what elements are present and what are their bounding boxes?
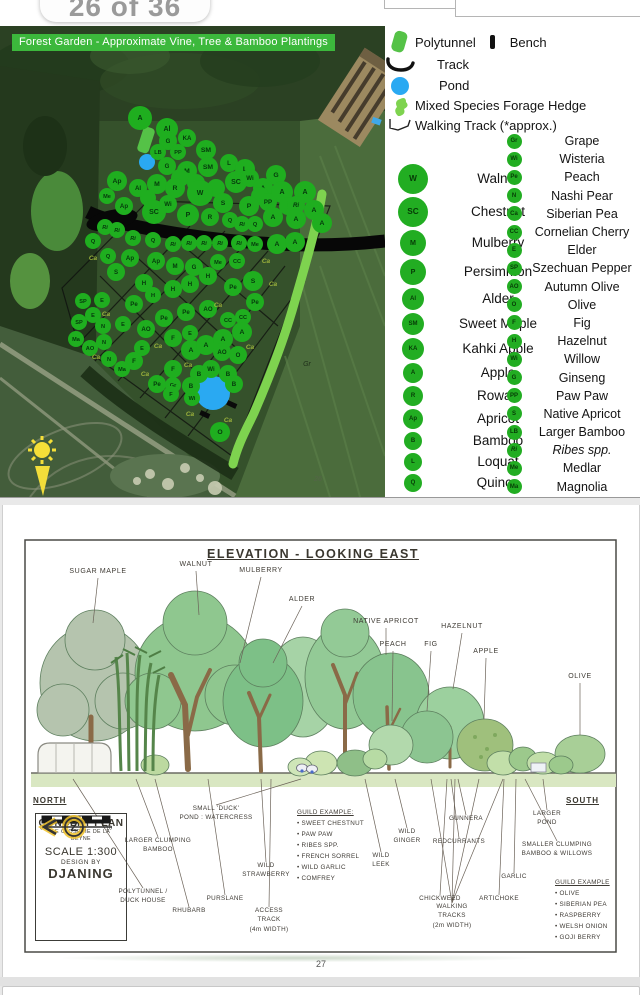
tree-marker: Ap	[147, 252, 165, 270]
guild-title: GUILD EXAMPLE	[555, 877, 610, 888]
svg-text:Q: Q	[151, 238, 156, 244]
guild-item: • WELSH ONION	[555, 921, 610, 932]
svg-text:E: E	[91, 313, 95, 319]
tree-marker: SM	[196, 140, 216, 160]
legend-species-small: GrGrapeWiWisteriaPePeachNNashi PearCaSib…	[503, 132, 639, 496]
polytunnel-drawing	[38, 743, 111, 773]
svg-text:N: N	[107, 357, 111, 363]
svg-text:Ri: Ri	[293, 202, 299, 209]
svg-text:SC: SC	[149, 209, 159, 216]
species-symbol: SC	[398, 197, 428, 227]
species-row: CaSiberian Pea	[503, 205, 639, 223]
svg-text:Ca: Ca	[102, 311, 111, 318]
tree-marker: SM	[198, 157, 218, 177]
svg-text:Pe: Pe	[153, 381, 161, 388]
tree-marker: Pe	[246, 293, 264, 311]
svg-text:Ap: Ap	[112, 178, 121, 185]
svg-text:E: E	[100, 298, 104, 304]
species-name: Cornelian Cherry	[525, 225, 639, 239]
guild-item: • SIBERIAN PEA	[555, 899, 610, 910]
svg-text:G: G	[166, 138, 171, 145]
svg-text:R: R	[173, 185, 178, 192]
svg-text:CC: CC	[233, 259, 241, 265]
tree-marker: Ri	[196, 235, 212, 251]
elevation-annotation: REDCURRANTS	[433, 837, 485, 846]
tree-marker: Ma	[68, 331, 84, 347]
species-name: Fig	[525, 316, 639, 330]
svg-text:F: F	[169, 392, 173, 398]
tree-marker: Wi	[159, 195, 177, 213]
tree-marker: B	[225, 375, 243, 393]
elevation-tree-label: ALDER	[289, 596, 315, 603]
elevation-tree-label: WALNUT	[180, 561, 213, 568]
svg-text:Ca: Ca	[269, 281, 278, 288]
tree-marker: M	[147, 174, 167, 194]
svg-text:Pe: Pe	[130, 301, 138, 308]
tree-marker: Ri	[212, 235, 228, 251]
tree-marker: Q	[100, 248, 116, 264]
guild-example-1: GUILD EXAMPLE:• SWEET CHESTNUT• PAW PAW•…	[297, 807, 364, 884]
elevation-annotation: LARGER CLUMPINGBAMBOO	[125, 836, 191, 855]
elevation-annotation: RHUBARB	[172, 906, 205, 915]
elevation-tree-label: MULBERRY	[239, 567, 283, 574]
tree-marker: F	[164, 360, 182, 378]
walking-track-icon	[385, 117, 415, 133]
tree-marker: PP	[170, 144, 186, 160]
species-symbol: SM	[402, 313, 424, 335]
svg-text:KA: KA	[183, 135, 192, 142]
svg-text:A: A	[302, 189, 307, 196]
tree-marker: P	[177, 204, 199, 226]
elevation-annotation: ACCESSTRACK(4m WIDTH)	[250, 906, 289, 934]
tree-marker: A	[312, 213, 332, 233]
svg-text:Ca: Ca	[214, 302, 223, 309]
svg-text:E: E	[121, 322, 125, 328]
svg-text:Al: Al	[135, 185, 141, 192]
tree-marker: CC	[220, 312, 236, 328]
species-symbol: Pe	[507, 170, 522, 185]
tree-marker: E	[94, 292, 110, 308]
svg-text:Ma: Ma	[118, 367, 127, 373]
species-row: AOAutumn Olive	[503, 278, 639, 296]
tree-marker: Ca	[214, 302, 223, 309]
page-indicator-text: 26 of 36	[69, 0, 181, 22]
svg-text:A: A	[204, 342, 209, 349]
tree-marker: A	[286, 209, 306, 229]
species-row: CCCornelian Cherry	[503, 223, 639, 241]
species-symbol: W	[398, 164, 428, 194]
svg-text:AO: AO	[203, 306, 212, 313]
reader-screen: 26 of 36	[0, 0, 640, 995]
south-label: SOUTH	[566, 796, 599, 805]
elevation-annotation: PURSLANE	[207, 894, 244, 903]
svg-text:SC: SC	[231, 179, 241, 186]
elevation-annotation: WILDSTRAWBERRY	[242, 861, 290, 880]
tree-marker: Q	[247, 216, 263, 232]
svg-text:Ca: Ca	[262, 258, 271, 265]
svg-text:A: A	[294, 216, 299, 223]
tree-marker: Al	[129, 179, 147, 197]
species-name: Grape	[525, 134, 639, 148]
tree-marker: F	[163, 386, 179, 402]
page-number: 27	[3, 959, 639, 969]
designer-name: DJANING	[36, 866, 126, 881]
species-name: Paw Paw	[525, 389, 639, 403]
elevation-annotation: SMALL 'DUCK'POND : WATERCRESS	[179, 804, 252, 823]
species-name: Elder	[525, 243, 639, 257]
svg-text:G: G	[192, 264, 197, 271]
tree-marker: H	[199, 267, 217, 285]
tree-marker: Wi	[202, 360, 220, 378]
svg-text:Ri: Ri	[170, 242, 176, 248]
tree-marker: Wi	[184, 390, 200, 406]
elevation-tree-label: HAZELNUT	[441, 623, 483, 630]
tree-marker: Q	[145, 232, 161, 248]
tree-marker: Pe	[155, 309, 173, 327]
guild-item: • WILD GARLIC	[297, 862, 364, 873]
species-row: PePeach	[503, 168, 639, 186]
tree-marker: Pe	[177, 303, 195, 321]
tree-marker: Ca	[89, 255, 98, 262]
species-row: OOlive	[503, 296, 639, 314]
tree-marker: O	[229, 346, 247, 364]
svg-text:P: P	[247, 203, 252, 210]
species-name: Peach	[525, 170, 639, 184]
tree-marker: Ca	[246, 344, 255, 351]
elevation-title: ELEVATION - LOOKING EAST	[173, 547, 453, 561]
legend-label: Track	[437, 57, 469, 72]
legend-label: Walking Track (*approx.)	[415, 118, 557, 133]
species-symbol: LB	[507, 425, 522, 440]
tree-marker: A	[232, 322, 252, 342]
svg-text:Ca: Ca	[154, 343, 163, 350]
bench-icon	[476, 34, 510, 50]
map-page[interactable]: AAlGKALBPPSMGMSMLLSCWiGAAAApAlMRWMeApSCW…	[0, 26, 640, 498]
species-symbol: KA	[402, 338, 424, 360]
field-label: 26	[313, 476, 322, 483]
svg-text:Ri: Ri	[236, 241, 242, 247]
species-name: Willow	[525, 352, 639, 366]
tree-marker: SP	[75, 293, 91, 309]
legend-row-pond: Pond	[385, 75, 640, 96]
svg-text:A: A	[271, 214, 276, 221]
svg-text:A: A	[189, 347, 194, 354]
svg-text:P: P	[186, 212, 191, 219]
svg-text:LB: LB	[154, 150, 161, 156]
species-symbol: M	[400, 230, 426, 256]
svg-text:S: S	[251, 278, 256, 285]
tree-marker: Ca	[186, 411, 195, 418]
svg-text:G: G	[273, 172, 278, 179]
svg-text:A: A	[312, 207, 317, 214]
svg-text:Ap: Ap	[120, 203, 128, 210]
tree-marker: Ri	[231, 235, 247, 251]
elevation-tree-label: SUGAR MAPLE	[69, 568, 126, 575]
svg-text:Ca: Ca	[141, 371, 150, 378]
species-symbol: P	[400, 259, 426, 285]
svg-text:B: B	[189, 383, 194, 390]
species-symbol: Ri	[507, 443, 522, 458]
elevation-annotation: CHICKWEED	[419, 894, 461, 903]
svg-text:A: A	[320, 220, 325, 227]
species-symbol: Ma	[507, 479, 522, 494]
guild-item: • SWEET CHESTNUT	[297, 818, 364, 829]
tree-marker: Ap	[121, 249, 139, 267]
svg-text:Ap: Ap	[152, 258, 160, 265]
species-row: MaMagnolia	[503, 478, 639, 496]
svg-text:Ri: Ri	[130, 236, 136, 242]
svg-text:SM: SM	[201, 147, 212, 154]
tree-marker: SP	[71, 314, 87, 330]
tree-marker: A	[267, 234, 287, 254]
tree-marker: Ma	[114, 361, 130, 377]
svg-text:Pe: Pe	[182, 309, 190, 316]
species-symbol: Wi	[507, 152, 522, 167]
species-row: HHazelnut	[503, 332, 639, 350]
svg-text:Wi: Wi	[164, 201, 172, 208]
species-symbol: E	[507, 243, 522, 258]
tree-marker: Ri	[165, 236, 181, 252]
svg-text:Me: Me	[251, 242, 259, 248]
svg-text:Me: Me	[103, 194, 111, 200]
guild-item: • RIBES SPP.	[297, 840, 364, 851]
svg-text:SM: SM	[203, 164, 214, 171]
svg-text:F: F	[171, 366, 175, 373]
guild-item: • OLIVE	[555, 888, 610, 899]
svg-text:B: B	[197, 371, 202, 378]
species-symbol: Q	[404, 474, 422, 492]
svg-text:AO: AO	[86, 346, 95, 352]
legend-label: Pond	[439, 78, 469, 93]
svg-text:Ri: Ri	[114, 228, 120, 234]
tree-marker: P	[239, 196, 259, 216]
species-row: MeMedlar	[503, 459, 639, 477]
hedge-icon	[385, 95, 415, 117]
tree-marker: Ca	[269, 281, 278, 288]
tree-marker: R	[201, 208, 219, 226]
elevation-tree-label: FIG	[424, 641, 437, 648]
species-row: SNative Apricot	[503, 405, 639, 423]
tree-marker: Ca	[224, 417, 233, 424]
tree-marker: KA	[178, 129, 196, 147]
species-symbol: AO	[507, 279, 522, 294]
map-title-banner: Forest Garden - Approximate Vine, Tree &…	[12, 34, 335, 51]
svg-text:Z: Z	[70, 820, 77, 834]
tree-marker: H	[164, 280, 182, 298]
legend-label: Mixed Species Forage Hedge	[415, 98, 586, 113]
tree-marker: H	[145, 287, 161, 303]
species-row: FFig	[503, 314, 639, 332]
species-row: PPPaw Paw	[503, 387, 639, 405]
tree-marker: AO	[137, 320, 155, 338]
svg-text:E: E	[140, 346, 144, 352]
concept-plan-box: CONCEPT PLAN LE CLOSERIE DE LA BEYNE SCA…	[35, 813, 127, 941]
tree-marker: Pe	[125, 295, 143, 313]
elevation-tree-label: NATIVE APRICOT	[353, 618, 419, 625]
svg-text:Q: Q	[91, 239, 96, 245]
tree-marker: AO	[213, 343, 231, 361]
guild-title: GUILD EXAMPLE:	[297, 807, 364, 818]
species-row: WiWisteria	[503, 150, 639, 168]
north-label: NORTH	[33, 796, 66, 805]
tree-marker: Ap	[115, 197, 133, 215]
tree-marker: W	[187, 180, 213, 206]
tree-marker: S	[243, 271, 263, 291]
svg-text:A: A	[279, 189, 284, 196]
tree-marker: N	[95, 318, 111, 334]
species-symbol: Ca	[507, 206, 522, 221]
svg-text:CC: CC	[224, 318, 232, 324]
species-symbol: G	[507, 370, 522, 385]
tree-marker: Ri	[181, 235, 197, 251]
svg-text:Ri: Ri	[201, 241, 207, 247]
species-row: GrGrape	[503, 132, 639, 150]
page-gap	[0, 977, 640, 986]
svg-text:H: H	[142, 280, 146, 287]
svg-text:W: W	[197, 190, 204, 197]
svg-text:Ma: Ma	[72, 337, 81, 343]
tree-marker: N	[101, 351, 117, 367]
svg-text:A: A	[137, 115, 142, 122]
svg-text:H: H	[188, 281, 192, 288]
guild-item: • COMFREY	[297, 873, 364, 884]
svg-text:O: O	[236, 352, 241, 359]
svg-text:Ca: Ca	[224, 417, 233, 424]
species-row: SPSzechuan Pepper	[503, 259, 639, 277]
species-symbol: N	[507, 188, 522, 203]
tree-marker: Me	[247, 236, 263, 252]
svg-text:M: M	[154, 181, 160, 188]
species-symbol: CC	[507, 225, 522, 240]
svg-text:Pe: Pe	[229, 284, 237, 291]
guild-item: • PAW PAW	[297, 829, 364, 840]
field-label: Gr	[303, 361, 311, 368]
svg-text:H: H	[151, 293, 155, 299]
svg-text:SP: SP	[79, 299, 87, 305]
legend-row-hedge: Mixed Species Forage Hedge	[385, 96, 640, 115]
tree-marker: S	[213, 193, 233, 213]
species-symbol: R	[403, 386, 423, 406]
svg-text:N: N	[102, 340, 106, 346]
species-row: NNashi Pear	[503, 187, 639, 205]
species-name: Wisteria	[525, 152, 639, 166]
pond-icon	[385, 76, 415, 96]
svg-text:CC: CC	[239, 315, 247, 321]
svg-text:Ca: Ca	[246, 344, 255, 351]
svg-text:M: M	[172, 263, 177, 270]
guild-item: • GOJI BERRY	[555, 932, 610, 943]
species-symbol: Gr	[507, 134, 522, 149]
species-row: LBLarger Bamboo	[503, 423, 639, 441]
map-legend: Polytunnel Bench Track Pond	[385, 26, 640, 497]
species-symbol: L	[404, 453, 422, 471]
forest-garden-map[interactable]: AAlGKALBPPSMGMSMLLSCWiGAAAApAlMRWMeApSCW…	[0, 26, 385, 497]
tree-marker: Ri	[125, 230, 141, 246]
svg-text:Ca: Ca	[92, 354, 101, 361]
svg-text:Me: Me	[214, 260, 222, 266]
tree-marker: Ca	[262, 258, 271, 265]
legend-label: Polytunnel	[415, 35, 476, 50]
tree-marker: LB	[150, 144, 166, 160]
species-name: Olive	[525, 298, 639, 312]
species-symbol: F	[507, 315, 522, 330]
elevation-page[interactable]: ELEVATION - LOOKING EAST NORTH SOUTH SUG…	[2, 505, 640, 978]
page-indicator-bubble: 26 of 36	[40, 0, 210, 22]
tree-marker: Me	[210, 254, 226, 270]
tree-marker: Pe	[224, 278, 242, 296]
svg-text:Pe: Pe	[251, 299, 259, 306]
species-symbol: B	[404, 432, 422, 450]
tree-marker: Ca	[92, 354, 101, 361]
elevation-annotation: WALKINGTRACKS(2m WIDTH)	[433, 902, 472, 930]
svg-text:Wi: Wi	[246, 175, 254, 182]
page-corner	[455, 0, 640, 17]
elevation-annotation: SMALLER CLUMPINGBAMBOO & WILLOWS	[522, 840, 593, 859]
tree-marker: E	[115, 316, 131, 332]
svg-text:S: S	[221, 200, 226, 207]
svg-text:Q: Q	[228, 218, 233, 224]
tree-marker: Ri	[109, 222, 125, 238]
tree-marker: Ca	[141, 371, 150, 378]
svg-text:L: L	[227, 160, 231, 167]
scale-text: SCALE 1:300	[36, 846, 126, 858]
small-structure	[531, 763, 546, 772]
svg-text:Q: Q	[253, 222, 258, 228]
svg-text:Ri: Ri	[102, 225, 108, 231]
legend-features: Polytunnel Bench Track Pond	[385, 30, 640, 135]
tree-marker: CC	[229, 253, 245, 269]
tree-marker: Ca	[102, 311, 111, 318]
guild-item: • RASPBERRY	[555, 910, 610, 921]
svg-text:AO: AO	[141, 326, 150, 333]
species-symbol: Al	[402, 288, 424, 310]
species-symbol: O	[507, 297, 522, 312]
svg-text:PP: PP	[174, 150, 182, 156]
species-row: WiWillow	[503, 350, 639, 368]
elevation-annotation: ARTICHOKE	[479, 894, 519, 903]
svg-text:B: B	[232, 381, 237, 388]
svg-text:S: S	[114, 269, 118, 276]
svg-text:A: A	[221, 336, 226, 343]
elevation-annotation: GUNNERA	[449, 814, 483, 823]
tree-marker: F	[164, 329, 182, 347]
species-symbol: A	[403, 363, 423, 383]
elevation-annotation: WILDGINGER	[394, 827, 421, 846]
tree-marker: Ap	[107, 171, 127, 191]
svg-text:Wi: Wi	[207, 366, 215, 373]
species-symbol: PP	[507, 388, 522, 403]
polytunnel-icon	[385, 30, 415, 54]
svg-text:SP: SP	[75, 320, 83, 326]
next-page-edge	[2, 986, 640, 995]
tree-marker: O	[210, 422, 230, 442]
svg-text:Ri: Ri	[239, 222, 245, 228]
svg-text:Ri: Ri	[217, 241, 223, 247]
species-row: RiRibes spp.	[503, 441, 639, 459]
elevation-tree-label: APPLE	[473, 648, 499, 655]
svg-text:H: H	[206, 273, 210, 280]
svg-text:R: R	[208, 214, 213, 221]
species-name: Larger Bamboo	[525, 425, 639, 439]
svg-text:A: A	[293, 239, 298, 246]
legend-label: Bench	[510, 35, 547, 50]
species-symbol: SP	[507, 261, 522, 276]
species-name: Medlar	[525, 461, 639, 475]
tree-marker: A	[285, 232, 305, 252]
designer-logo: Z	[36, 814, 120, 840]
svg-text:N: N	[101, 324, 105, 330]
svg-text:Ca: Ca	[89, 255, 98, 262]
